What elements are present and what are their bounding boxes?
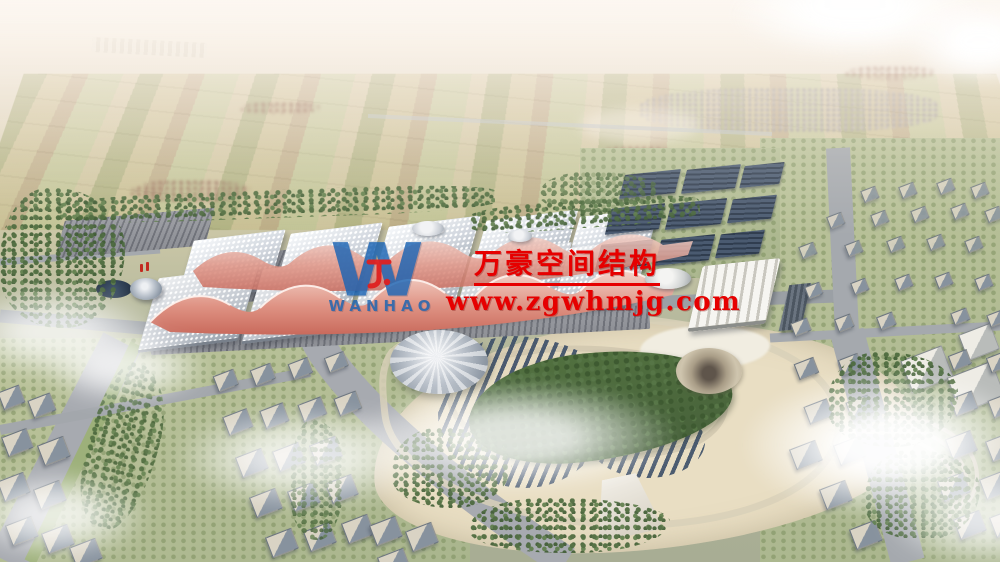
wave-canopy <box>130 225 710 345</box>
round-plaza <box>508 230 532 242</box>
round-plaza <box>412 221 444 236</box>
cloud <box>40 330 210 405</box>
oval-building <box>645 268 691 289</box>
crater-pavilion <box>676 348 742 394</box>
cloud <box>350 380 680 495</box>
aerial-rendering: W WANHAO 万豪空间结构 www.zgwhmjg.com <box>0 0 1000 562</box>
